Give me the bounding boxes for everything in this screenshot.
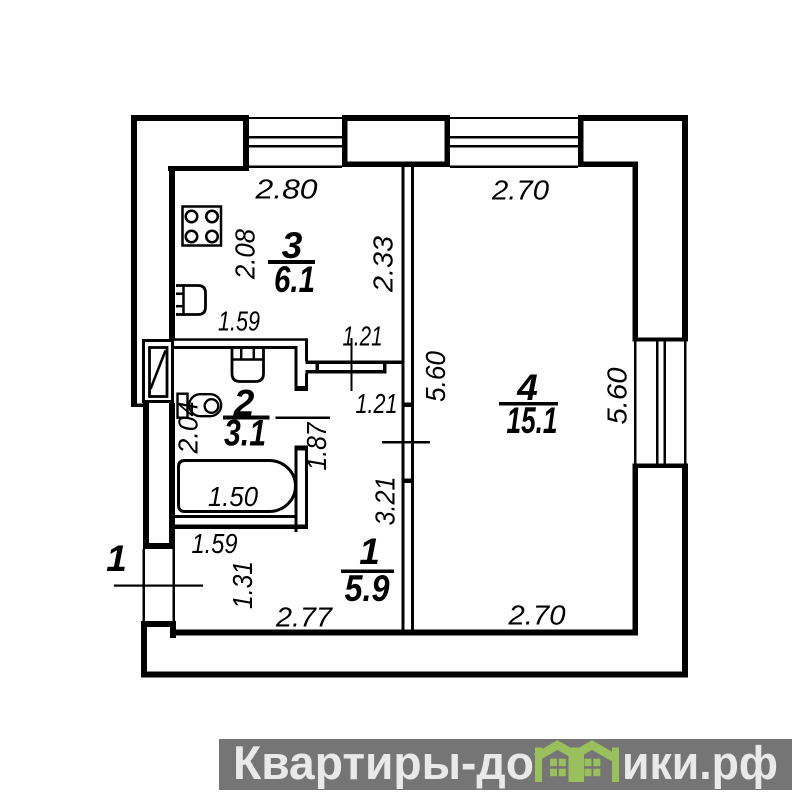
svg-text:1.87: 1.87 bbox=[301, 421, 332, 470]
svg-text:5.60: 5.60 bbox=[420, 351, 451, 402]
svg-text:ики.рф: ики.рф bbox=[622, 736, 778, 789]
svg-text:5.60: 5.60 bbox=[602, 367, 633, 424]
svg-text:2.08: 2.08 bbox=[230, 229, 261, 280]
svg-text:3.21: 3.21 bbox=[370, 477, 401, 526]
svg-text:2.70: 2.70 bbox=[507, 600, 565, 631]
svg-text:6.1: 6.1 bbox=[274, 259, 315, 300]
svg-text:1: 1 bbox=[359, 531, 380, 572]
svg-text:2.70: 2.70 bbox=[491, 175, 549, 206]
svg-text:15.1: 15.1 bbox=[507, 400, 558, 441]
svg-text:2.33: 2.33 bbox=[368, 236, 399, 293]
svg-text:1.59: 1.59 bbox=[192, 528, 238, 559]
svg-text:3.1: 3.1 bbox=[224, 413, 266, 454]
svg-text:1.50: 1.50 bbox=[208, 481, 258, 512]
svg-text:5.9: 5.9 bbox=[345, 568, 390, 609]
svg-text:1.21: 1.21 bbox=[343, 321, 383, 352]
svg-text:Квартиры-до: Квартиры-до bbox=[233, 736, 534, 789]
svg-text:1: 1 bbox=[106, 538, 127, 579]
svg-text:2.77: 2.77 bbox=[275, 602, 333, 633]
svg-text:1.31: 1.31 bbox=[227, 561, 258, 609]
svg-text:2.04: 2.04 bbox=[173, 402, 204, 455]
svg-text:1.59: 1.59 bbox=[218, 306, 260, 337]
svg-text:2.80: 2.80 bbox=[254, 174, 318, 205]
svg-text:1.21: 1.21 bbox=[356, 388, 398, 419]
